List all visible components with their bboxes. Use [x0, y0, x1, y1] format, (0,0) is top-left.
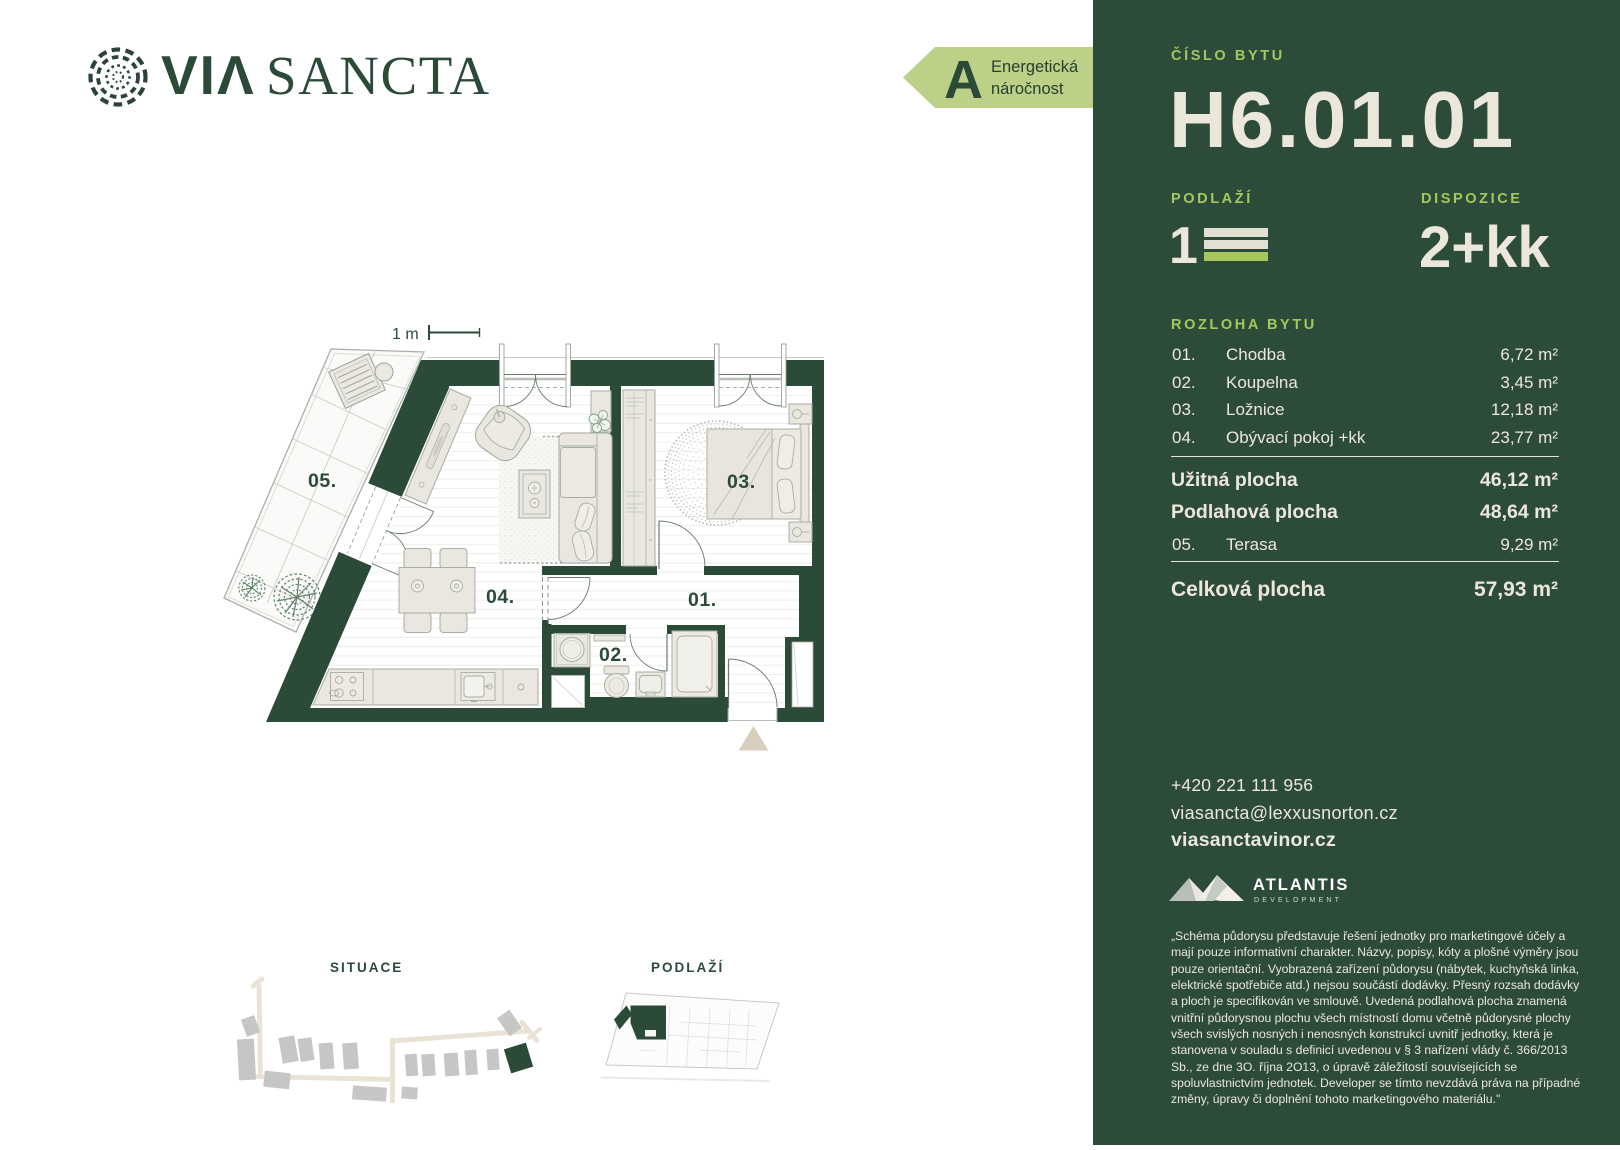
- svg-text:05.: 05.: [308, 470, 337, 492]
- svg-text:02.: 02.: [599, 644, 628, 666]
- svg-text:ATLANTIS: ATLANTIS: [1253, 876, 1349, 894]
- svg-text:03.: 03.: [727, 471, 756, 493]
- svg-text:1 m: 1 m: [392, 326, 419, 343]
- svg-text:DEVELOPMENT: DEVELOPMENT: [1254, 897, 1342, 904]
- svg-text:01.: 01.: [688, 589, 717, 611]
- svg-text:04.: 04.: [486, 586, 515, 608]
